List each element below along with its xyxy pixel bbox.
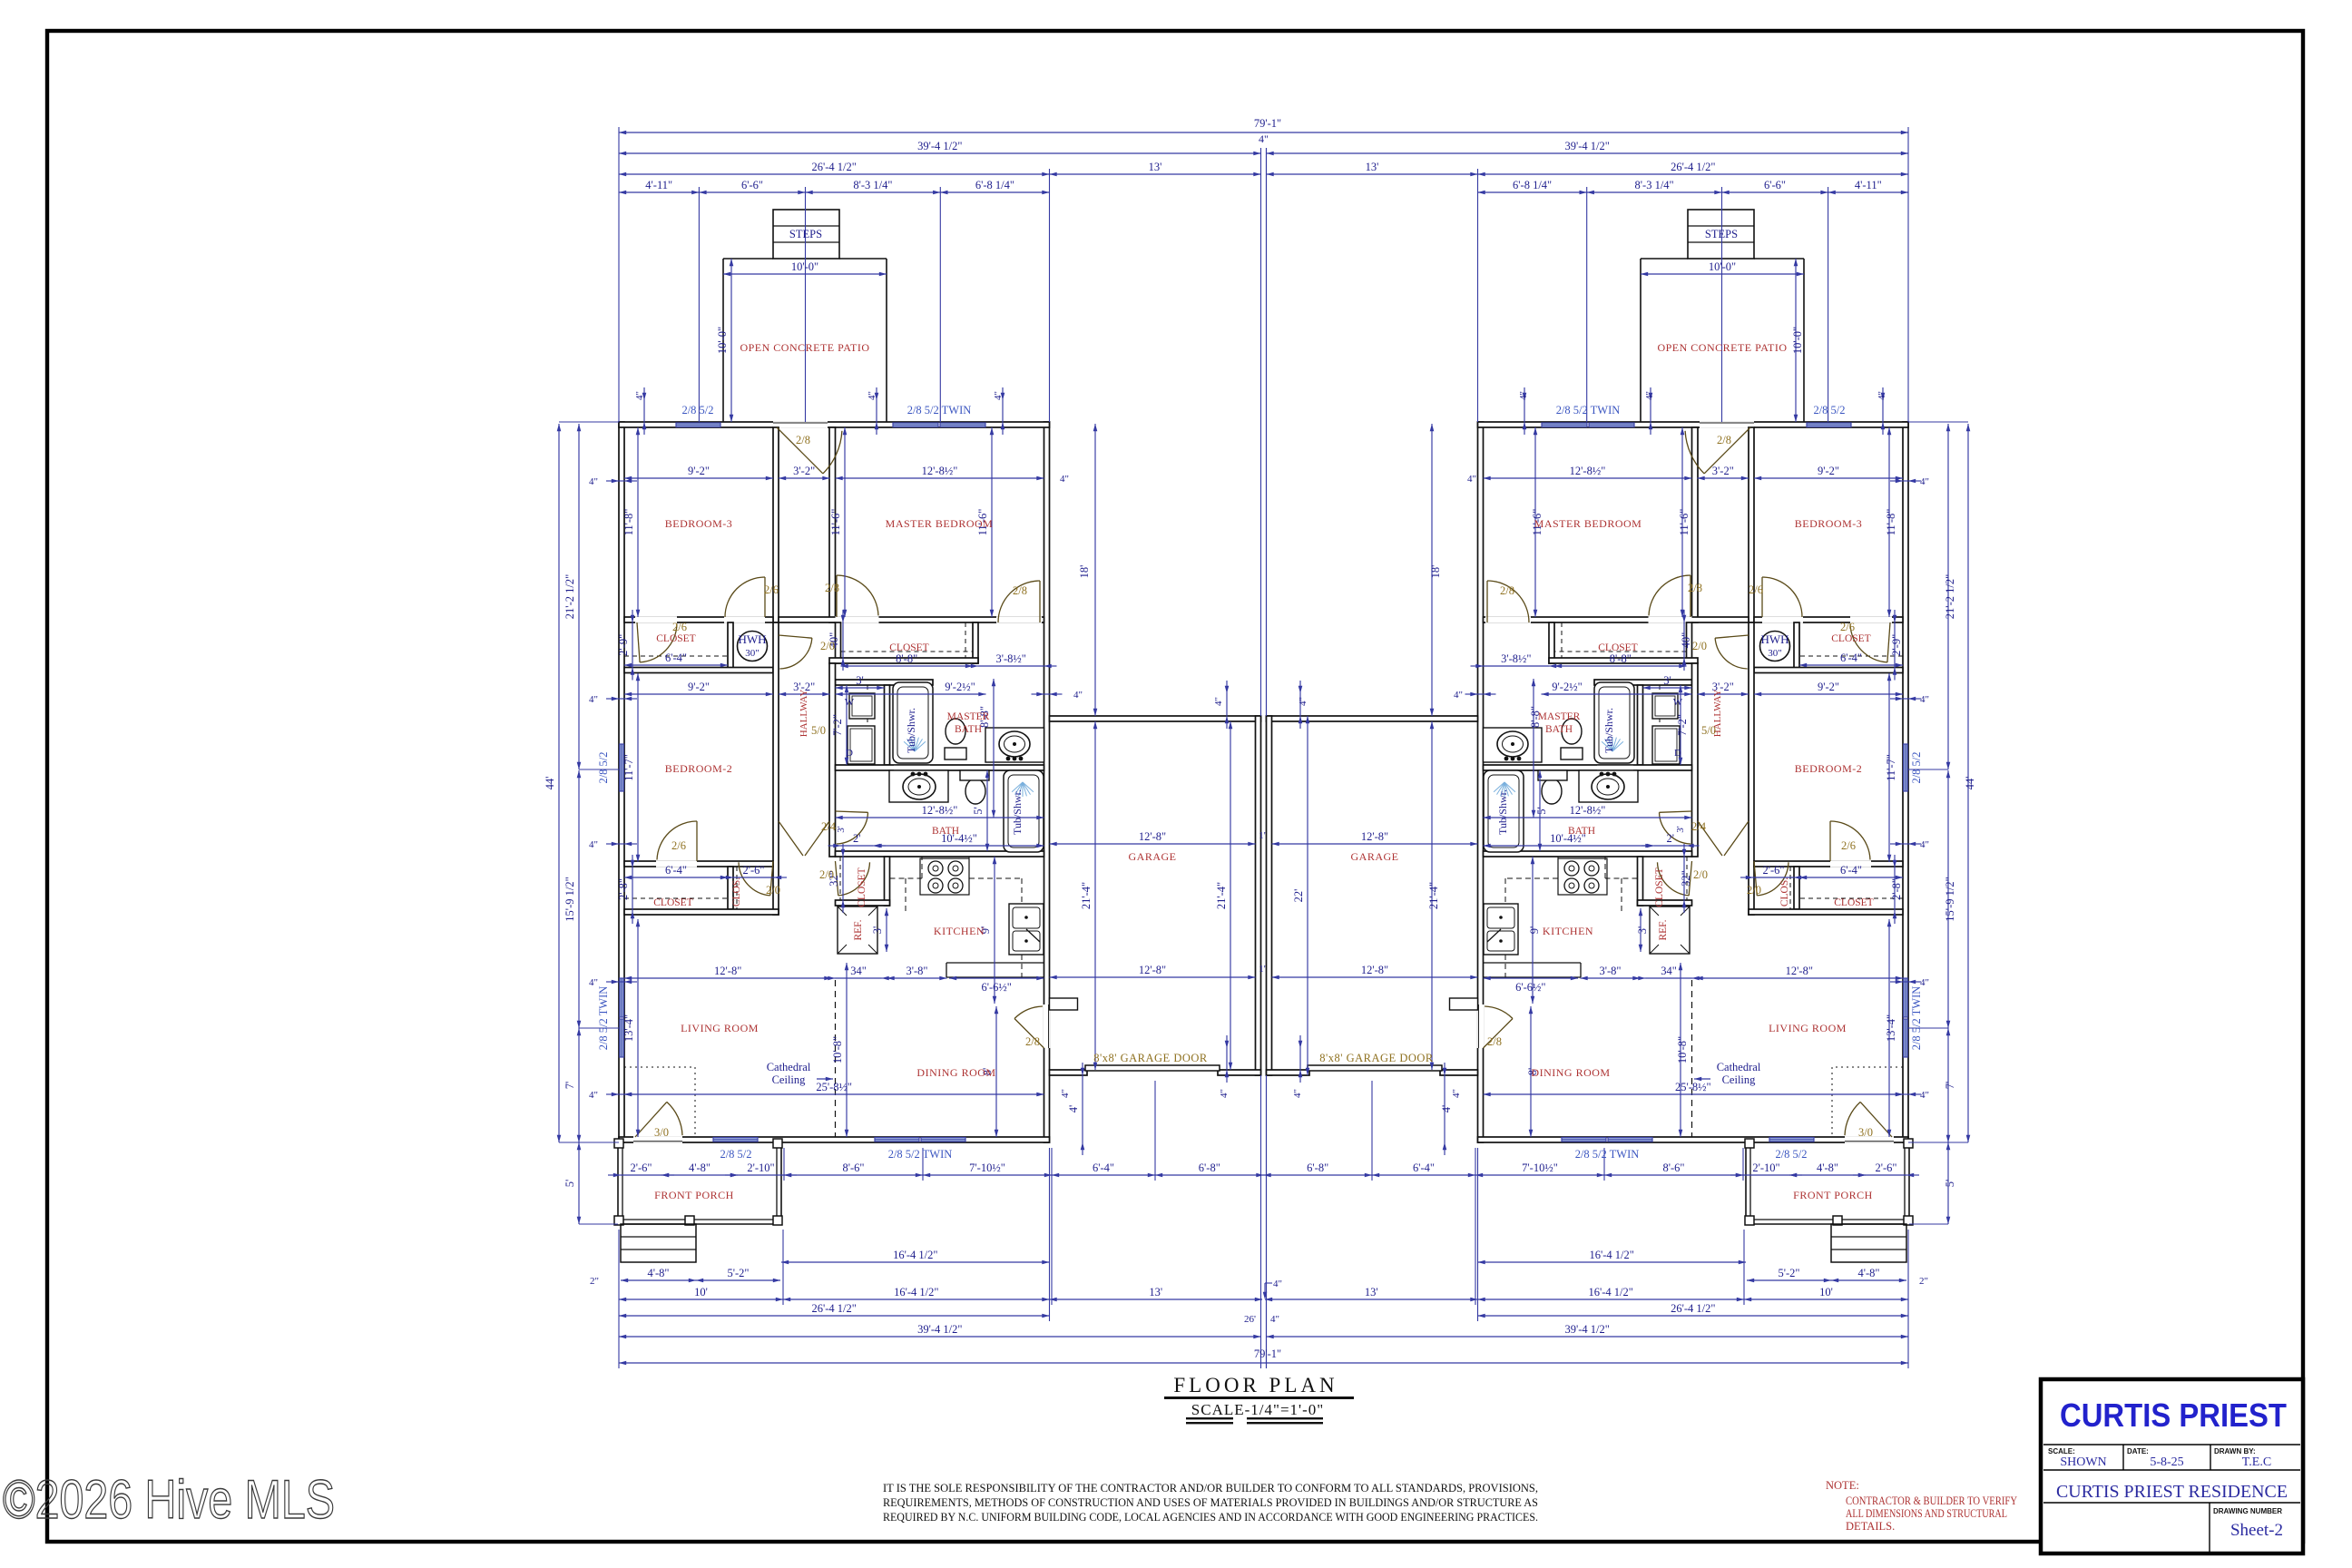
svg-text:HALLWAY: HALLWAY [799,690,809,738]
svg-text:30": 30" [1768,648,1782,659]
svg-text:2/8: 2/8 [1025,1035,1040,1048]
svg-text:7': 7' [563,1082,576,1090]
svg-text:3': 3' [1663,674,1671,687]
svg-text:6'-4": 6'-4" [1093,1161,1114,1174]
svg-text:16'-4 1/2": 16'-4 1/2" [893,1249,937,1261]
svg-text:32": 32" [1680,870,1692,887]
svg-text:KITCHEN: KITCHEN [934,925,985,937]
svg-text:SCALE:: SCALE: [2048,1447,2075,1455]
svg-text:8'x8' GARAGE DOOR: 8'x8' GARAGE DOOR [1319,1052,1434,1064]
svg-text:CURTIS PRIEST: CURTIS PRIEST [2060,1396,2287,1434]
svg-text:CLOSET: CLOSET [1598,642,1637,653]
svg-text:4": 4" [1219,1089,1230,1098]
svg-text:10'-0": 10'-0" [791,260,818,273]
svg-text:5/0: 5/0 [1701,724,1716,737]
svg-text:15'-9 1/2": 15'-9 1/2" [563,877,576,921]
svg-text:4": 4" [1273,1279,1282,1289]
svg-text:2/0: 2/0 [1747,884,1761,897]
svg-text:2'-10": 2'-10" [747,1161,774,1174]
svg-text:Tub/Shwr.: Tub/Shwr. [1496,789,1509,835]
svg-text:2'-6": 2'-6" [1875,1161,1896,1174]
svg-text:2/8 5/2: 2/8 5/2 [1775,1148,1807,1161]
svg-text:6'-4": 6'-4" [665,864,687,877]
svg-text:10': 10' [1819,1286,1833,1298]
svg-text:BATH: BATH [955,724,982,735]
svg-text:6'-6": 6'-6" [1764,179,1786,191]
svg-text:CLOSET: CLOSET [1831,633,1870,644]
svg-text:79'-1": 79'-1" [1254,117,1281,130]
svg-text:NOTE:: NOTE: [1826,1479,1859,1492]
svg-text:21'-4": 21'-4" [1427,882,1440,909]
svg-text:2'-6": 2'-6" [742,864,764,877]
svg-text:Cathedral: Cathedral [1717,1061,1761,1073]
svg-text:2/8 5/2: 2/8 5/2 [1813,404,1845,416]
svg-text:MASTER BEDROOM: MASTER BEDROOM [886,517,994,530]
svg-text:2/8 5/2 TWIN: 2/8 5/2 TWIN [907,404,972,416]
svg-text:5-8-25: 5-8-25 [2150,1455,2183,1469]
svg-text:3/0: 3/0 [1858,1126,1873,1139]
svg-text:12'-8": 12'-8" [1139,964,1166,976]
svg-text:3'-2": 3'-2" [793,465,815,477]
svg-text:2'-6": 2'-6" [630,1161,652,1174]
svg-text:5': 5' [1535,807,1548,815]
svg-text:8'-6": 8'-6" [1662,1161,1684,1174]
svg-text:4": 4" [1920,839,1929,850]
svg-text:4'-8": 4'-8" [1857,1267,1879,1279]
svg-text:CLOSET: CLOSET [653,897,692,908]
svg-text:Sheet-2: Sheet-2 [2230,1521,2283,1540]
svg-text:4": 4" [1920,694,1929,705]
svg-text:2/6: 2/6 [671,839,686,852]
svg-text:BEDROOM-3: BEDROOM-3 [1795,517,1863,530]
svg-text:2/8 5/2 TWIN: 2/8 5/2 TWIN [1556,404,1621,416]
svg-text:21'-4": 21'-4" [1080,882,1093,909]
svg-text:34": 34" [850,965,867,977]
svg-text:3/0: 3/0 [654,1126,669,1139]
svg-text:2': 2' [853,832,861,845]
svg-text:REF.: REF. [853,919,864,940]
svg-text:16'-4 1/2": 16'-4 1/2" [1590,1249,1634,1261]
svg-text:Ceiling: Ceiling [1722,1073,1757,1086]
svg-text:10'-0": 10'-0" [1791,327,1804,354]
svg-text:8'-3 1/4": 8'-3 1/4" [1635,179,1674,191]
svg-text:15'-9 1/2": 15'-9 1/2" [1944,877,1956,921]
svg-text:ALL DIMENSIONS AND STRUCTUR: ALL DIMENSIONS AND STRUCTURAL [1846,1507,2007,1520]
svg-text:CLOSET: CLOSET [889,642,928,653]
svg-text:4'-8": 4'-8" [689,1161,710,1174]
svg-text:13'-4": 13'-4" [1885,1014,1897,1042]
svg-text:SCALE-1/4"=1'-0": SCALE-1/4"=1'-0" [1191,1401,1324,1418]
svg-text:9'-2½": 9'-2½" [1552,681,1582,693]
svg-text:6'-4": 6'-4" [1840,652,1862,664]
svg-text:9'-2": 9'-2" [1818,681,1839,693]
svg-text:2/8 5/2: 2/8 5/2 [1910,751,1923,783]
svg-text:11'-7": 11'-7" [1885,754,1897,781]
svg-text:2": 2" [1919,1276,1928,1287]
svg-text:10'-8": 10'-8" [831,1036,844,1063]
svg-text:10'-0": 10'-0" [716,327,729,354]
svg-text:CONTRACTOR & BUILDER TO VE: CONTRACTOR & BUILDER TO VERIFY [1846,1494,2017,1507]
svg-text:SHOWN: SHOWN [2060,1455,2106,1469]
svg-text:2': 2' [1667,832,1675,845]
svg-text:6'-4": 6'-4" [665,652,687,664]
svg-text:2/8 5/2 TWIN: 2/8 5/2 TWIN [1575,1148,1640,1161]
svg-text:2/0: 2/0 [766,884,780,897]
svg-text:4": 4" [1920,1090,1929,1101]
svg-text:BATH: BATH [932,826,959,837]
svg-text:4': 4' [1067,1105,1080,1113]
svg-text:GARAGE: GARAGE [1351,850,1399,863]
svg-text:7'-2": 7'-2" [831,714,844,736]
svg-text:CLOSET: CLOSET [1834,897,1873,908]
svg-text:3'-8½": 3'-8½" [1501,652,1531,665]
svg-text:11'-7": 11'-7" [622,754,635,781]
svg-text:2/8 5/2: 2/8 5/2 [597,751,610,783]
svg-text:3': 3' [1636,926,1649,935]
svg-text:2/6: 2/6 [1841,839,1856,852]
svg-text:4'-11": 4'-11" [1855,179,1882,191]
svg-text:4": 4" [634,391,645,400]
svg-text:W: W [845,697,855,708]
svg-text:Tub/Shwr.: Tub/Shwr. [1602,708,1615,753]
svg-text:13'-4": 13'-4" [622,1014,635,1042]
svg-text:5'-2": 5'-2" [1778,1267,1799,1279]
svg-text:6'-8 1/4": 6'-8 1/4" [975,179,1014,191]
svg-text:REQUIREMENTS, METHODS OF CO: REQUIREMENTS, METHODS OF CONSTRUCTION AN… [883,1495,1538,1509]
svg-text:4': 4' [1440,1105,1453,1113]
svg-text:2/0: 2/0 [1693,868,1708,881]
svg-text:Ceiling: Ceiling [772,1073,807,1086]
svg-text:12'-8": 12'-8" [1786,965,1813,977]
svg-text:Tub/Shwr.: Tub/Shwr. [1011,789,1024,835]
svg-text:6'-6½": 6'-6½" [1515,981,1545,994]
svg-text:BEDROOM-2: BEDROOM-2 [1795,762,1863,775]
svg-text:26': 26' [1244,1314,1256,1325]
svg-text:REF.: REF. [1658,919,1669,940]
svg-text:10'-8": 10'-8" [1676,1036,1689,1063]
svg-text:11'-6": 11'-6" [1678,509,1690,536]
svg-text:12'-8": 12'-8" [1361,964,1388,976]
svg-text:4": 4" [589,839,598,850]
svg-text:21'-4": 21'-4" [1215,882,1228,909]
svg-text:2/4: 2/4 [821,820,837,833]
svg-text:8'-8": 8'-8" [1610,652,1632,665]
svg-text:STEPS: STEPS [789,228,822,240]
svg-text:9'-2½": 9'-2½" [945,681,975,693]
svg-text:CLOS.: CLOS. [1779,877,1790,906]
svg-text:2/8: 2/8 [1013,584,1027,597]
svg-text:LIVING ROOM: LIVING ROOM [1769,1022,1847,1034]
svg-text:4": 4" [1060,474,1069,485]
svg-text:4": 4" [1298,697,1308,706]
svg-text:13': 13' [1149,1286,1162,1298]
svg-text:5': 5' [972,807,985,815]
svg-text:4": 4" [1292,1089,1303,1098]
svg-text:4": 4" [993,391,1004,400]
svg-text:CLOSET: CLOSET [1654,867,1665,906]
svg-text:2/0: 2/0 [820,640,835,652]
svg-text:FRONT PORCH: FRONT PORCH [654,1189,734,1201]
svg-text:12'-8½": 12'-8½" [922,804,958,817]
svg-text:5/0: 5/0 [811,724,826,737]
svg-text:OPEN CONCRETE PATIO: OPEN CONCRETE PATIO [740,341,869,354]
svg-text:IT IS THE SOLE RESPONSIBIL: IT IS THE SOLE RESPONSIBILITY OF THE CON… [883,1481,1538,1494]
svg-text:2/8: 2/8 [796,434,810,446]
svg-text:2'-9": 2'-9" [617,634,630,656]
svg-text:CLOSET: CLOSET [656,633,695,644]
svg-text:6'-8": 6'-8" [1199,1161,1220,1174]
svg-text:4": 4" [589,694,598,705]
svg-text:6'-8": 6'-8" [1307,1161,1328,1174]
svg-text:HWH: HWH [738,632,766,646]
svg-text:CLOS.: CLOS. [731,877,742,906]
svg-text:11'-8": 11'-8" [622,509,635,536]
svg-text:25'-8½": 25'-8½" [1675,1081,1711,1093]
svg-text:12'-8": 12'-8" [1139,830,1166,843]
svg-text:39'-4 1/2": 39'-4 1/2" [1565,140,1610,152]
svg-text:26'-4 1/2": 26'-4 1/2" [1671,161,1715,173]
svg-text:D: D [846,748,853,759]
svg-text:11'-8": 11'-8" [1885,509,1897,536]
svg-text:22': 22' [1292,889,1305,903]
svg-text:2/8 5/2 TWIN: 2/8 5/2 TWIN [597,986,610,1051]
svg-text:MASTER: MASTER [1538,711,1581,722]
svg-text:2/0: 2/0 [819,868,834,881]
svg-text:MASTER BEDROOM: MASTER BEDROOM [1534,517,1642,530]
svg-text:LIVING ROOM: LIVING ROOM [681,1022,759,1034]
svg-text:DINING ROOM: DINING ROOM [916,1066,995,1079]
svg-text:7'-10½": 7'-10½" [1522,1161,1558,1174]
svg-text:4": 4" [1877,391,1887,400]
svg-text:CLOSET: CLOSET [857,867,867,906]
svg-text:9'-2": 9'-2" [688,465,710,477]
svg-text:6'-4": 6'-4" [1413,1161,1435,1174]
svg-text:9'-2": 9'-2" [688,681,710,693]
svg-text:13': 13' [1366,161,1379,173]
svg-text:4": 4" [1259,132,1269,145]
svg-text:2/6: 2/6 [672,621,687,633]
svg-text:4": 4" [1644,391,1655,400]
svg-text:26'-4 1/2": 26'-4 1/2" [812,161,857,173]
svg-text:4": 4" [1213,697,1224,706]
svg-text:2'-6": 2'-6" [1762,864,1784,877]
svg-text:26'-4 1/2": 26'-4 1/2" [1671,1302,1715,1315]
svg-text:REQUIRED BY N.C. UNIFORM B: REQUIRED BY N.C. UNIFORM BUILDING CODE, … [883,1510,1538,1524]
svg-text:12'-8": 12'-8" [714,965,741,977]
svg-text:4": 4" [589,476,598,487]
svg-text:34": 34" [1661,965,1677,977]
svg-text:8'x8' GARAGE DOOR: 8'x8' GARAGE DOOR [1093,1052,1208,1064]
svg-text:4": 4" [1270,1314,1279,1325]
svg-text:BEDROOM-2: BEDROOM-2 [665,762,733,775]
svg-text:10': 10' [694,1286,708,1298]
svg-text:3': 3' [871,926,884,935]
svg-text:BATH: BATH [1545,724,1573,735]
svg-text:4": 4" [867,391,877,400]
svg-text:12'-8½": 12'-8½" [1570,804,1606,817]
svg-text:9': 9' [1528,926,1541,935]
svg-text:4'-8": 4'-8" [1817,1161,1838,1174]
svg-text:T.E.C: T.E.C [2242,1455,2271,1469]
svg-text:BEDROOM-3: BEDROOM-3 [665,517,733,530]
svg-text:FLOOR PLAN: FLOOR PLAN [1173,1374,1338,1396]
svg-text:7': 7' [1944,1082,1956,1090]
svg-text:2/8: 2/8 [1500,584,1514,597]
svg-text:4": 4" [1451,1089,1462,1098]
svg-text:DRAWN BY:: DRAWN BY: [2214,1447,2256,1455]
svg-text:10'-0": 10'-0" [1709,260,1736,273]
svg-text:4": 4" [589,1090,598,1101]
svg-text:3'-8": 3'-8" [1599,965,1621,977]
svg-text:1': 1' [1259,830,1266,841]
svg-text:39'-4 1/2": 39'-4 1/2" [1565,1323,1610,1336]
svg-text:6'-8 1/4": 6'-8 1/4" [1513,179,1552,191]
svg-text:3': 3' [836,826,847,833]
svg-text:12'-8½": 12'-8½" [922,465,958,477]
svg-text:3'-8½": 3'-8½" [995,652,1025,665]
svg-text:2/8: 2/8 [1717,434,1731,446]
svg-text:DATE:: DATE: [2127,1447,2149,1455]
svg-text:4": 4" [1454,690,1463,701]
svg-text:STEPS: STEPS [1705,228,1738,240]
svg-text:12'-8½": 12'-8½" [1570,465,1606,477]
svg-text:4": 4" [1920,476,1929,487]
svg-text:8'-8": 8'-8" [896,652,917,665]
svg-text:4": 4" [1467,474,1476,485]
svg-text:2'-8": 2'-8" [617,878,630,900]
svg-text:39'-4 1/2": 39'-4 1/2" [917,140,962,152]
svg-text:Tub/Shwr.: Tub/Shwr. [905,708,917,753]
svg-text:2": 2" [590,1276,599,1287]
svg-text:25'-8½": 25'-8½" [816,1081,852,1093]
svg-text:OPEN CONCRETE PATIO: OPEN CONCRETE PATIO [1657,341,1787,354]
svg-text:26'-4 1/2": 26'-4 1/2" [812,1302,857,1315]
svg-text:4": 4" [1518,391,1529,400]
svg-text:4'-8": 4'-8" [647,1267,669,1279]
svg-text:3'-2": 3'-2" [1712,465,1734,477]
svg-text:D: D [1674,748,1681,759]
svg-text:8'-6": 8'-6" [842,1161,864,1174]
svg-text:HWH: HWH [1760,632,1788,646]
svg-text:30": 30" [745,648,759,659]
svg-text:2'-10": 2'-10" [1752,1161,1779,1174]
svg-text:FRONT PORCH: FRONT PORCH [1793,1189,1873,1201]
svg-text:40": 40" [1680,632,1692,649]
svg-text:4'-11": 4'-11" [645,179,672,191]
svg-text:2/8: 2/8 [1487,1035,1502,1048]
svg-text:5': 5' [1944,1180,1956,1188]
svg-text:16'-4 1/2": 16'-4 1/2" [1589,1286,1633,1298]
svg-text:18': 18' [1078,565,1091,579]
svg-text:2/8 5/2: 2/8 5/2 [720,1148,751,1161]
svg-text:7'-10½": 7'-10½" [969,1161,1005,1174]
svg-text:2/4: 2/4 [1691,820,1707,833]
svg-text:3'-8": 3'-8" [906,965,927,977]
svg-text:16'-4 1/2": 16'-4 1/2" [894,1286,938,1298]
svg-text:39'-4 1/2": 39'-4 1/2" [917,1323,962,1336]
svg-text:DETAILS.: DETAILS. [1846,1520,1895,1533]
svg-text:44': 44' [1964,777,1976,790]
svg-text:6'-6": 6'-6" [741,179,763,191]
svg-text:BATH: BATH [1568,826,1595,837]
svg-text:2/6: 2/6 [1840,621,1855,633]
svg-text:CURTIS PRIEST RESIDENCE: CURTIS PRIEST RESIDENCE [2056,1482,2288,1502]
svg-text:6'-4": 6'-4" [1840,864,1862,877]
svg-text:9'-2": 9'-2" [1818,465,1839,477]
svg-text:DINING ROOM: DINING ROOM [1531,1066,1610,1079]
svg-text:2/8: 2/8 [1688,582,1702,594]
svg-text:13': 13' [1365,1286,1378,1298]
svg-text:4": 4" [1060,1089,1071,1098]
svg-text:4": 4" [1073,690,1083,701]
svg-text:18': 18' [1429,565,1442,579]
svg-text:79'-1": 79'-1" [1254,1347,1281,1360]
svg-text:7'-2": 7'-2" [1676,714,1689,736]
svg-text:21'-2 1/2": 21'-2 1/2" [1944,574,1956,619]
svg-text:2/8 5/2 TWIN: 2/8 5/2 TWIN [1910,986,1923,1051]
svg-text:2'-8": 2'-8" [1890,878,1903,900]
svg-text:GARAGE: GARAGE [1129,850,1177,863]
svg-text:5': 5' [563,1180,576,1188]
svg-text:2/6: 2/6 [764,583,779,596]
svg-text:13': 13' [1149,161,1162,173]
svg-text:3': 3' [1675,826,1686,833]
svg-text:Cathedral: Cathedral [767,1061,811,1073]
svg-text:6'-6½": 6'-6½" [981,981,1011,994]
svg-text:KITCHEN: KITCHEN [1543,925,1593,937]
svg-text:21'-2 1/2": 21'-2 1/2" [563,574,576,619]
svg-text:44': 44' [544,777,556,790]
svg-text:2/0: 2/0 [1692,640,1707,652]
svg-text:MASTER: MASTER [947,711,990,722]
svg-text:1': 1' [1259,964,1266,975]
svg-text:2/6: 2/6 [1749,583,1763,596]
svg-text:12'-8": 12'-8" [1361,830,1388,843]
svg-text:5'-2": 5'-2" [727,1267,749,1279]
svg-text:W: W [1673,697,1683,708]
svg-text:11'-6": 11'-6" [829,509,842,536]
svg-text:DRAWING NUMBER: DRAWING NUMBER [2213,1507,2282,1515]
svg-text:8'-3 1/4": 8'-3 1/4" [853,179,892,191]
svg-text:©2026 Hive MLS: ©2026 Hive MLS [3,1469,335,1530]
svg-text:2/8 5/2: 2/8 5/2 [681,404,713,416]
svg-text:2/8: 2/8 [825,582,839,594]
svg-text:2/8 5/2 TWIN: 2/8 5/2 TWIN [888,1148,953,1161]
svg-text:2'-9": 2'-9" [1890,634,1903,656]
svg-text:3': 3' [856,674,864,687]
